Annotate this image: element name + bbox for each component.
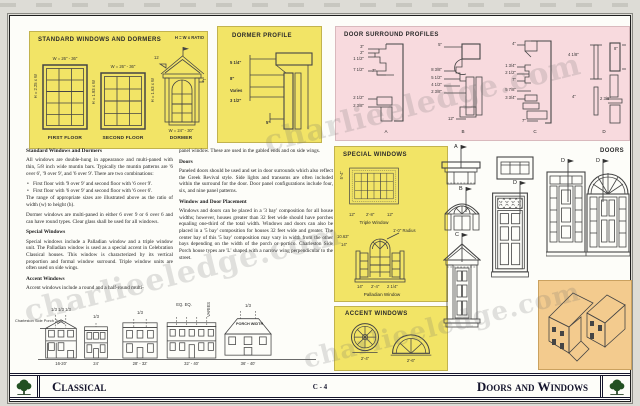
book-page: charlieeledge.com charlieeledge.com char…: [9, 15, 631, 402]
half-round-window-drawing: [389, 333, 433, 357]
house4-width-label: 32' - 40': [165, 362, 218, 366]
door-surround-profiles-panel: DOOR SURROUND PROFILES 3" 2" 1 1/2" 7 1/…: [335, 26, 630, 141]
dormer-caption: DORMER: [156, 136, 206, 141]
dormer-profile-panel: DORMER PROFILE 5 1/4" 8" Varies 3 1/2" 5…: [217, 26, 322, 143]
profile-c-dim5: 5 7/8": [505, 88, 516, 92]
profile-a-dim5: 7": [372, 69, 376, 73]
paragraph: The range of appropriate sizes are illus…: [26, 195, 173, 208]
palladian-bot-mid: 2'-4": [371, 285, 379, 289]
first-floor-window-drawing: [42, 64, 88, 130]
dormer-profile-dim1: 5 1/4": [230, 61, 241, 65]
surround-profile-b: 5" 8 3/8" 5 1/2" 4 1/2" 2 3/8" 12" B: [424, 41, 484, 137]
profile-d-dim3: 4": [572, 95, 576, 99]
house2-bay-label: 1/3: [83, 315, 109, 319]
paragraph: panel window. These are used in the gabl…: [179, 148, 333, 155]
house3-bay-label: 1/3: [121, 311, 159, 315]
triple-window-drawing: [349, 161, 399, 211]
profile-a-dim2: 2": [360, 51, 364, 55]
win1-height-dim: H = 2.25 x W: [33, 74, 38, 98]
standard-windows-panel: STANDARD WINDOWS AND DORMERS H = W x RAT…: [29, 31, 208, 149]
palladian-dim-b: 14": [341, 243, 347, 247]
text-column-1: Standard Windows and Dormers All windows…: [26, 148, 173, 296]
house4-elevation: [165, 317, 218, 359]
special-panel-title: SPECIAL WINDOWS: [343, 152, 407, 158]
triple-window-caption: Triple Window: [339, 220, 409, 225]
heading-accent-windows: Accent Windows: [26, 276, 173, 283]
dormer-profile-title: DORMER PROFILE: [232, 33, 292, 39]
paragraph: Special windows include a Palladian wind…: [26, 239, 173, 272]
transom-detail-drawing: [496, 156, 534, 180]
dormer-drawing: [158, 46, 206, 128]
dormer-width-dim: W = 24" - 30": [156, 129, 206, 133]
doors-column-title: DOORS: [590, 148, 634, 154]
profile-d-drawing: [582, 39, 626, 127]
paragraph: All windows are double-hung in appearanc…: [26, 157, 173, 177]
house5-bay-label: 1/3: [236, 304, 260, 308]
win1-width-dim: W = 26" - 36": [42, 57, 88, 61]
heading-doors: Doors: [179, 159, 333, 166]
dormer-profile-dim5: 5": [266, 121, 270, 125]
house1-elevation: [43, 315, 79, 359]
door-surrounds-title: DOOR SURROUND PROFILES: [344, 32, 439, 38]
profile-c-drawing: [516, 37, 554, 127]
bullet-item: First floor with '9 over 9' and second f…: [26, 181, 173, 188]
profile-b-dim2: 8 3/8": [431, 68, 442, 72]
profile-b-dim1: 5": [438, 43, 442, 47]
house2-width-label: 24': [83, 362, 109, 366]
text-column-2: panel window. These are used in the gabl…: [179, 148, 333, 265]
house4-bay-label: EQ. EQ.: [168, 303, 200, 307]
standard-panel-title: STANDARD WINDOWS AND DORMERS: [38, 37, 161, 43]
profile-a-label: A: [366, 129, 406, 134]
profile-d-dim2: 8": [614, 47, 618, 51]
ratio-label: H = W x RATIO: [175, 36, 204, 40]
profile-d-dim4: 2 3/8": [600, 97, 611, 101]
surround-profile-c: 4" 1 3/4" 2 1/2" 7" 5 7/8" 3 3/4" 7" C: [496, 37, 556, 137]
profile-c-dim4: 7": [512, 78, 516, 82]
house4-varies-label: VARIES: [206, 297, 211, 317]
heading-standard-windows: Standard Windows and Dormers: [26, 148, 173, 155]
profile-d-dim1: 4 1/8": [568, 53, 579, 57]
tree-icon: [14, 377, 34, 397]
house5-width-label: 36' - 40': [223, 362, 273, 366]
ground-line: [38, 359, 316, 360]
axonometric-houses-panel: [538, 280, 632, 370]
profile-b-label: B: [442, 129, 484, 134]
win2-caption: SECOND FLOOR: [96, 136, 150, 141]
house2-elevation: [83, 323, 109, 359]
special-windows-panel: SPECIAL WINDOWS 5'-4" 12" 2'-8" 12" Trip…: [334, 146, 448, 302]
profile-c-dim3: 2 1/2": [505, 71, 516, 75]
house1-width-label: 16-20': [43, 362, 79, 366]
palladian-window-caption: Palladian Window: [345, 292, 419, 297]
paragraph: Accent windows include a round and a hal…: [26, 285, 173, 292]
profile-a-dim1: 3": [360, 45, 364, 49]
palladian-window-drawing: [353, 231, 409, 283]
profile-a-dim7: 2 3/8": [353, 104, 364, 108]
house1-bay-label: 1/3 1/3 1/3: [43, 308, 79, 312]
profile-b-dim6: 12": [448, 117, 454, 121]
triple-dim-left: 12": [349, 213, 355, 217]
dormer-profile-dim4: 3 1/2": [230, 99, 241, 103]
house3-elevation: [121, 319, 159, 359]
round-window-dim: 2'-4": [347, 357, 383, 361]
surround-profile-d: 4 1/8" 8" 4" 2 3/8" D: [568, 39, 628, 137]
dormer-profile-dim2: 8": [230, 77, 234, 81]
door-with-fanlight-elevation: [586, 164, 630, 260]
house5-porch-label: PORCH WIDTH: [236, 322, 260, 326]
profile-c-dim7: 7": [522, 119, 526, 123]
house5-elevation: [223, 311, 273, 359]
footer-page-title: Doors and Windows: [477, 376, 600, 397]
profile-b-dim4: 4 1/2": [431, 83, 442, 87]
heading-special-windows: Special Windows: [26, 229, 173, 236]
profile-c-dim6: 3 3/4": [505, 96, 516, 100]
profile-a-dim3: 1 1/2": [353, 57, 364, 61]
palladian-bot-right: 2 1/4": [387, 285, 398, 289]
win2-height-dim: H = 1.93 x W: [91, 80, 96, 104]
profile-a-dim4: 7 1/2": [353, 68, 364, 72]
footer-title-bar: Classical C - 4 Doors and Windows: [10, 373, 630, 400]
footer-right-emblem: [600, 376, 630, 397]
win1-caption: FIRST FLOOR: [38, 136, 92, 141]
second-floor-window-drawing: [100, 72, 146, 130]
surround-c-elevation: [443, 242, 481, 328]
tree-icon: [607, 377, 627, 397]
triple-dim-right: 12": [387, 213, 393, 217]
axonometric-houses-drawing: [541, 283, 629, 367]
scanned-page-background: { "watermark": "charlieeledge.com", "foo…: [0, 0, 640, 406]
profile-c-dim1: 4": [512, 42, 516, 46]
paragraph: Windows and doors can be placed in a '3 …: [179, 208, 333, 261]
footer-left-emblem: [10, 376, 40, 397]
triple-dim-mid: 2'-8": [366, 213, 374, 217]
triple-window-height-dim: 5'-4": [339, 171, 344, 179]
accent-panel-title: ACCENT WINDOWS: [345, 311, 408, 317]
profile-c-dim2: 1 3/4": [505, 64, 516, 68]
half-round-window-dim: 2'-6": [389, 359, 433, 363]
surround-b-elevation: [443, 194, 481, 234]
accent-windows-panel: ACCENT WINDOWS 2'-4" 2'-6": [334, 306, 448, 371]
profile-c-label: C: [516, 129, 554, 134]
surround-a-elevation: [441, 158, 481, 186]
heading-placement: Window and Door Placement: [179, 199, 333, 206]
profile-b-drawing: [442, 41, 484, 125]
profile-d-label: D: [582, 129, 626, 134]
six-panel-door-elevation: [491, 190, 529, 278]
door-with-sidelights-elevation: [546, 168, 586, 260]
profile-a-dim6: 2 1/2": [353, 96, 364, 100]
profile-a-drawing: [366, 41, 406, 125]
bullet-item: First floor with '6 over 9' and second f…: [26, 188, 173, 195]
house3-width-label: 28' - 32': [121, 362, 159, 366]
charleston-callout: Charleston Side Porch Type: [15, 319, 45, 323]
dormer-height-dim: H = 1.63 x W: [150, 78, 155, 102]
surround-profile-a: 3" 2" 1 1/2" 7 1/2" 7" 2 1/2" 2 3/8" A: [350, 41, 408, 137]
paragraph: Paneled doors should be used and set in …: [179, 168, 333, 195]
paragraph: Dormer windows are multi-paned in either…: [26, 212, 173, 225]
palladian-bot-left: 14": [357, 285, 363, 289]
win2-width-dim: W = 26" - 36": [100, 65, 146, 69]
profile-b-dim5: 2 3/8": [431, 90, 442, 94]
profile-b-dim3: 5 1/2": [431, 76, 442, 80]
palladian-dim-a: 10.63": [337, 235, 349, 239]
round-window-drawing: [347, 320, 383, 356]
dormer-profile-dim3: Varies: [230, 89, 242, 93]
footer-section-title: Classical: [40, 376, 477, 397]
